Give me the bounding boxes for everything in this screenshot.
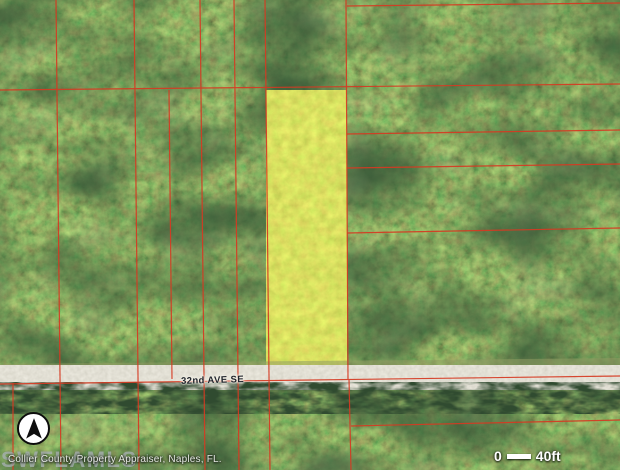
scale-bar: 0 40ft [494,448,561,464]
scale-end-label: 40ft [536,448,561,464]
north-arrow-icon [20,415,48,443]
map-canvas[interactable]: 32nd AVE SE SWFLAMLS Collier County Prop… [0,0,620,470]
attribution: Collier County Property Appraiser, Naple… [8,454,222,465]
highlighted-parcel[interactable] [266,90,347,379]
road-label: 32nd AVE SE [181,374,244,387]
scale-start-label: 0 [494,448,502,464]
aerial-imagery [0,0,620,470]
north-arrow [17,412,50,445]
scale-bar-line [507,454,531,459]
